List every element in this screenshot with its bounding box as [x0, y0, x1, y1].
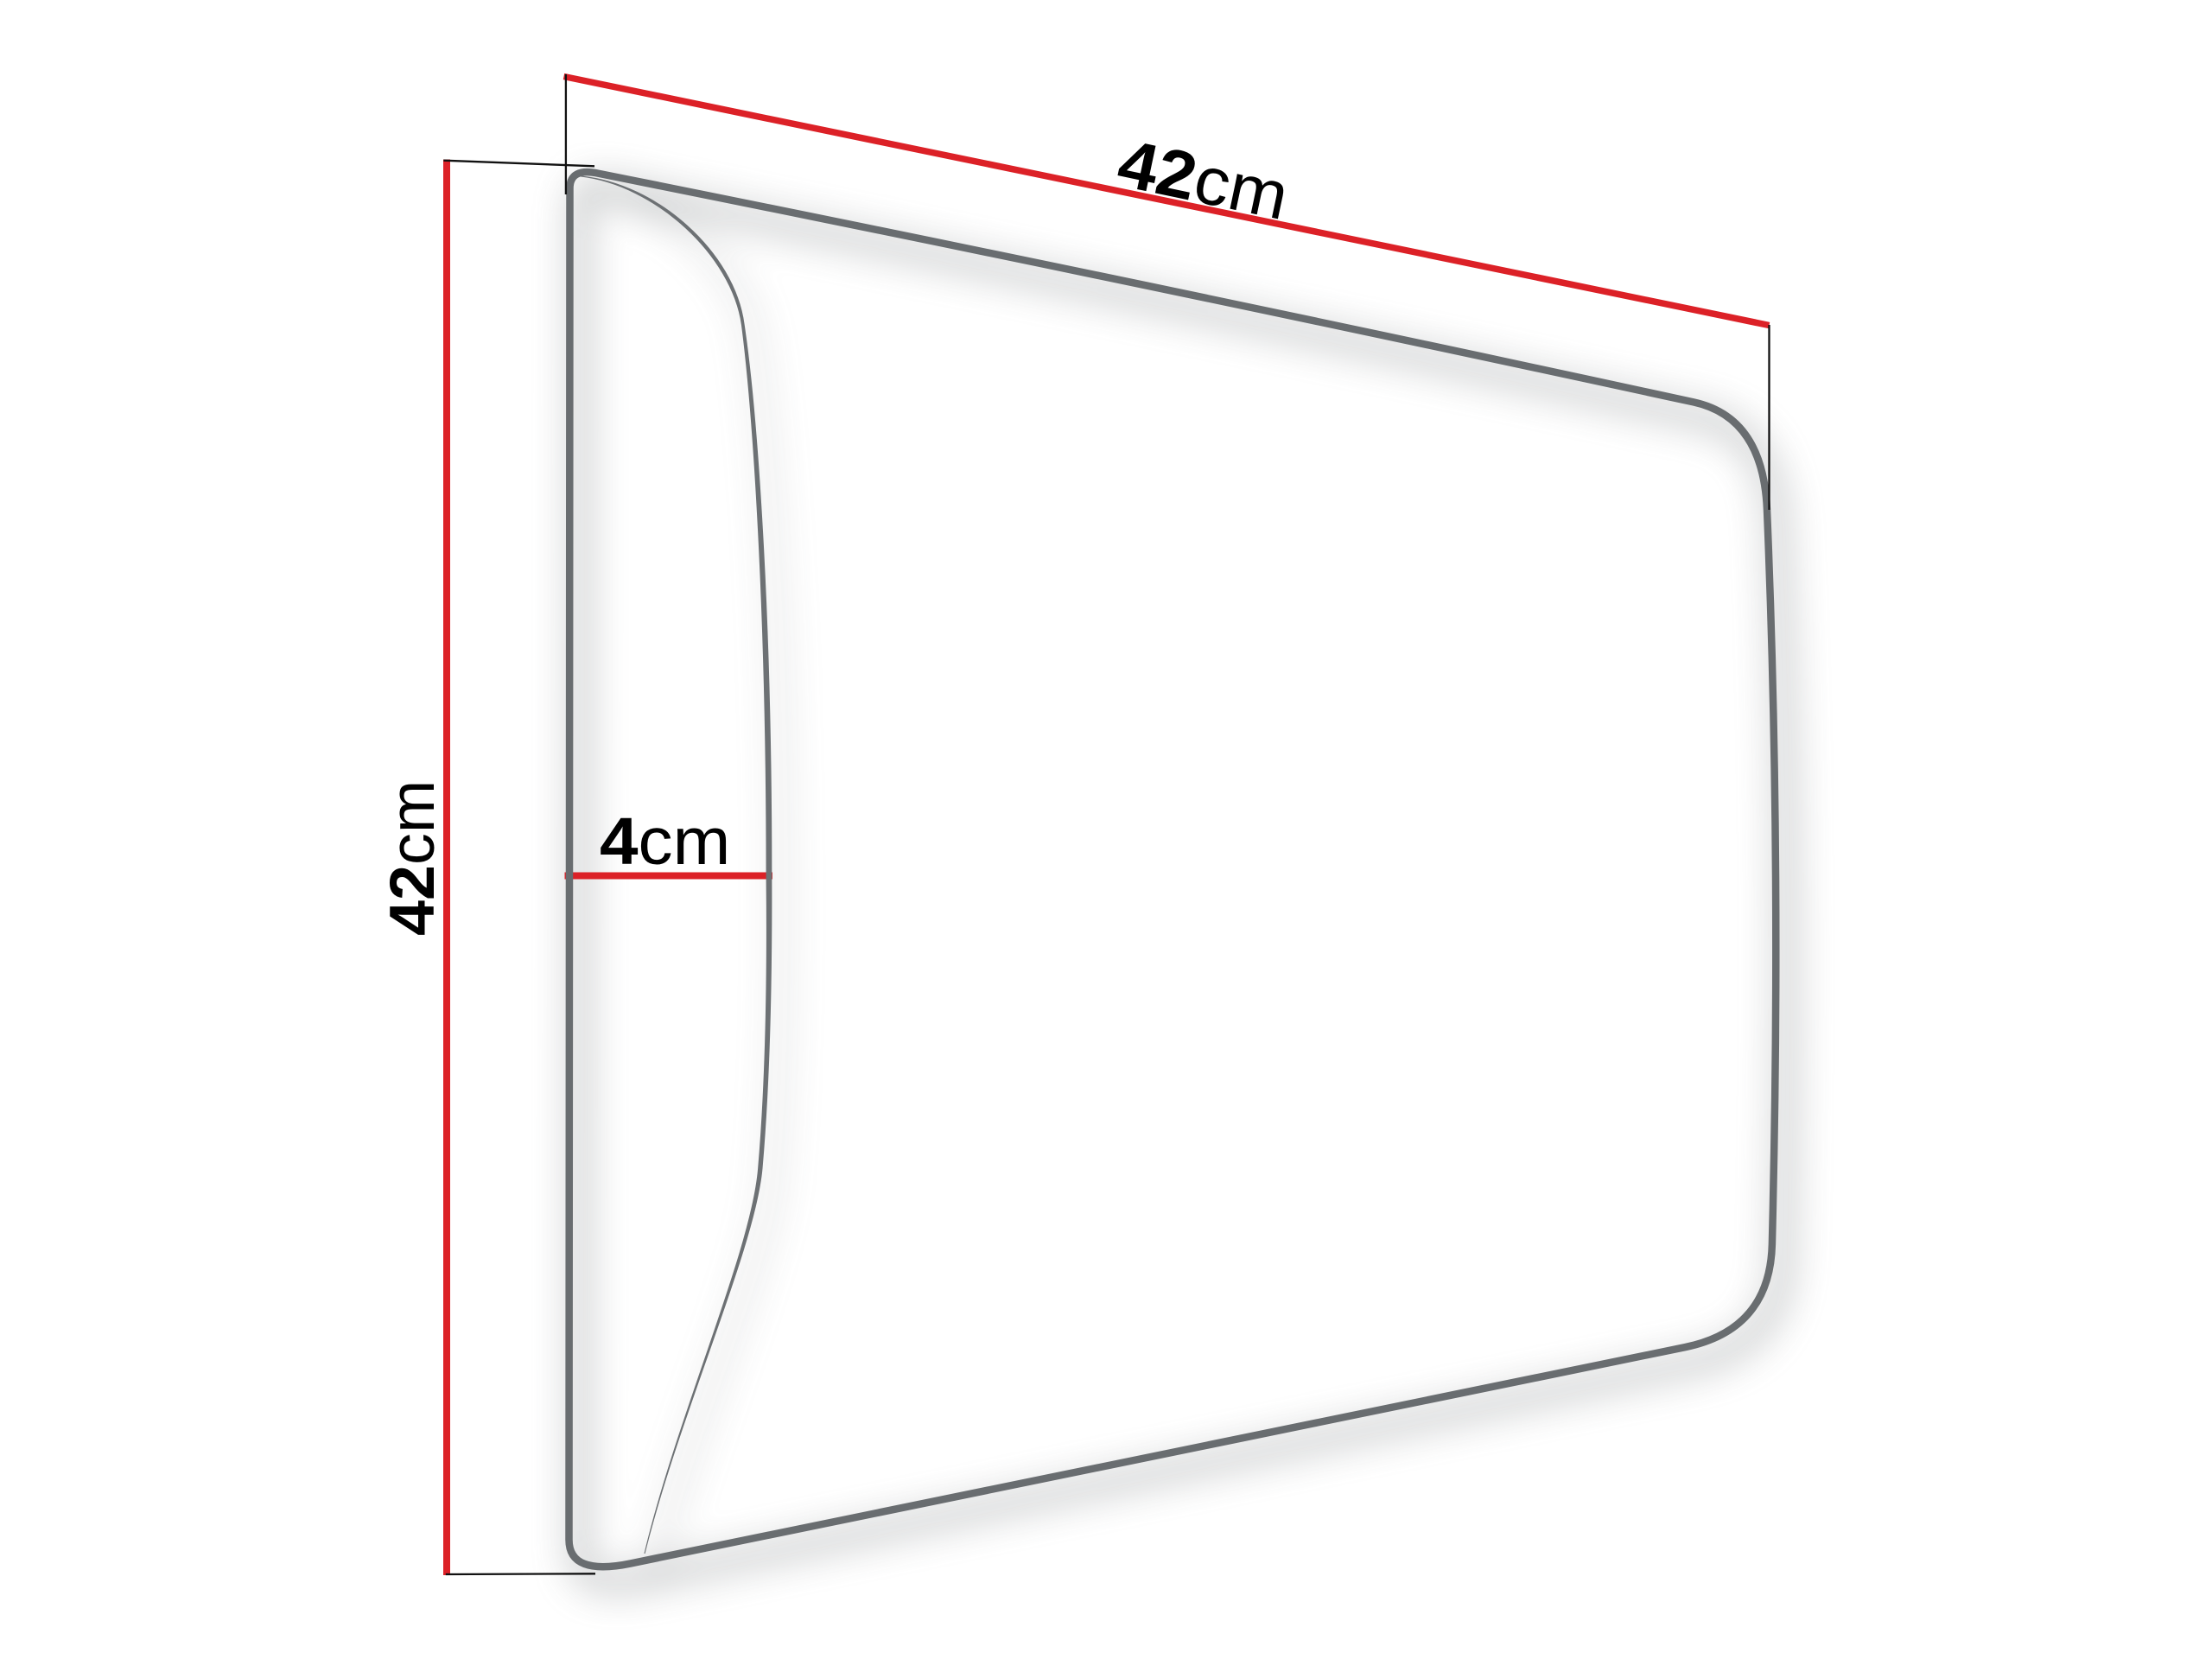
svg-text:4cm: 4cm	[600, 804, 730, 878]
svg-text:42cm: 42cm	[1112, 124, 1295, 233]
svg-text:42cm: 42cm	[377, 780, 448, 936]
